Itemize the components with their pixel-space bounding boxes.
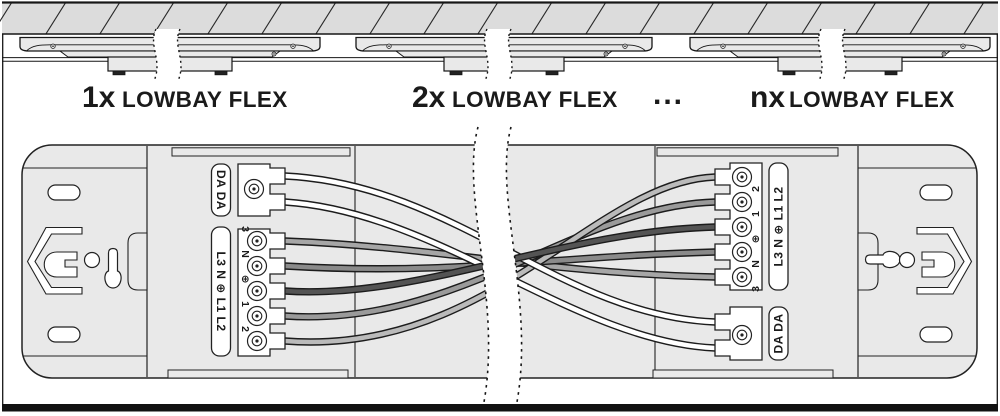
label-ellipsis: ... bbox=[653, 78, 684, 111]
mounting-slot bbox=[48, 185, 80, 200]
fixture-interior-view: DA DA L3 N ⊕ L1 L2 3 N ⊕ 1 2 bbox=[22, 127, 977, 402]
terminal-label: 1 bbox=[750, 211, 762, 217]
mounting-slot bbox=[920, 327, 952, 342]
terminal-label-earth: ⊕ bbox=[239, 275, 251, 284]
box-foot bbox=[546, 71, 558, 75]
mounting-slot bbox=[920, 185, 952, 200]
box-foot bbox=[783, 71, 795, 75]
label-count-n: nx bbox=[750, 81, 785, 114]
break-mark-luminaire-2 bbox=[485, 29, 512, 81]
figure-border-bottom bbox=[2, 404, 998, 412]
terminal-label: 2 bbox=[239, 326, 251, 332]
label-name-2: LOWBAY FLEX bbox=[452, 87, 618, 112]
box-foot bbox=[215, 71, 227, 75]
terminal-right-mains: L3 N ⊕ L1 L2 2 1 ⊕ N 3 bbox=[715, 163, 788, 292]
terminal-label: N bbox=[239, 250, 251, 258]
ceiling-top-edge bbox=[2, 1, 998, 3]
label-count-2: 2x bbox=[412, 81, 446, 114]
break-mark-luminaire-1 bbox=[154, 29, 181, 81]
dali-label-text: DA DA bbox=[772, 313, 786, 353]
latch-tab-left bbox=[128, 233, 147, 290]
mounting-hole bbox=[900, 253, 915, 268]
box-foot bbox=[885, 71, 897, 75]
label-name-n: LOWBAY FLEX bbox=[789, 87, 955, 112]
diagram-canvas: 1x LOWBAY FLEX 2x LOWBAY FLEX ... nx LOW… bbox=[0, 0, 1000, 416]
mounting-hole bbox=[85, 253, 100, 268]
terminal-label-earth: ⊕ bbox=[750, 235, 762, 244]
box-foot bbox=[450, 71, 462, 75]
terminal-label: 1 bbox=[239, 301, 251, 307]
terminal-label: N bbox=[750, 260, 762, 268]
mains-label-text: L3 N ⊕ L1 L2 bbox=[214, 251, 228, 331]
installation-diagram: 1x LOWBAY FLEX 2x LOWBAY FLEX ... nx LOW… bbox=[0, 0, 1000, 416]
dali-label-text: DA DA bbox=[214, 170, 228, 210]
label-count-1: 1x bbox=[82, 81, 116, 114]
luminaire-count-labels: 1x LOWBAY FLEX 2x LOWBAY FLEX ... nx LOW… bbox=[82, 78, 955, 114]
terminal-label: 3 bbox=[750, 286, 762, 292]
mounting-slot bbox=[48, 327, 80, 342]
break-mark-luminaire-3 bbox=[819, 29, 846, 81]
terminal-label: 3 bbox=[239, 226, 251, 232]
terminal-left-mains: L3 N ⊕ L1 L2 3 N ⊕ 1 2 bbox=[212, 226, 286, 356]
mains-label-text: L3 N ⊕ L1 L2 bbox=[772, 186, 786, 266]
terminal-label: 2 bbox=[750, 186, 762, 192]
box-foot bbox=[113, 71, 125, 75]
label-name-1: LOWBAY FLEX bbox=[122, 87, 288, 112]
